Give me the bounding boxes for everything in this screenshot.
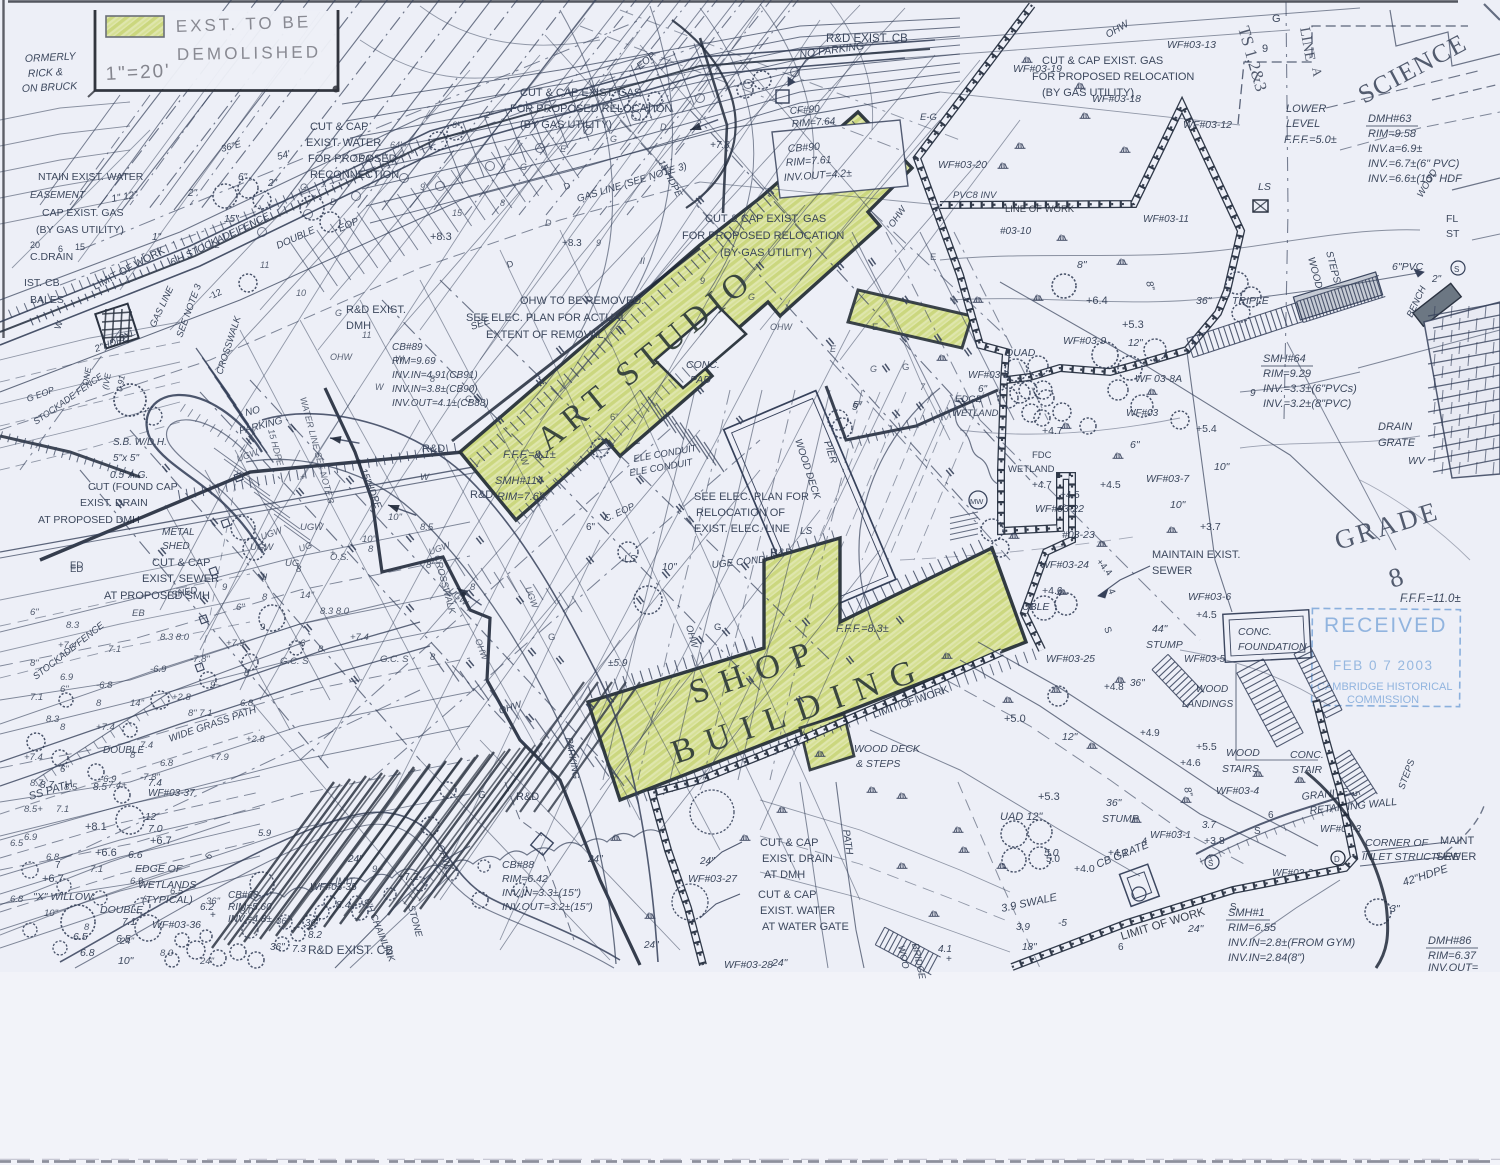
- svg-text:E: E: [830, 344, 837, 354]
- svg-text:INV.=3.2±(8"PVC): INV.=3.2±(8"PVC): [1263, 398, 1352, 410]
- svg-text:15: 15: [75, 242, 85, 252]
- svg-text:CORNER OF: CORNER OF: [1365, 837, 1429, 849]
- svg-text:WF#03-5: WF#03-5: [1184, 654, 1226, 665]
- svg-text:8: 8: [368, 544, 374, 555]
- svg-text:6": 6": [610, 412, 619, 423]
- svg-text:S: S: [1208, 859, 1213, 868]
- svg-text:24": 24": [1187, 923, 1205, 935]
- svg-text:LINE OF WORK: LINE OF WORK: [1005, 204, 1075, 215]
- svg-text:+5.5: +5.5: [1196, 741, 1217, 753]
- svg-text:CB#89: CB#89: [392, 342, 423, 353]
- svg-text:INV.=6.7±(6" PVC): INV.=6.7±(6" PVC): [1368, 158, 1460, 170]
- svg-text:7.4+: 7.4+: [108, 780, 127, 791]
- svg-text:15: 15: [452, 208, 463, 218]
- svg-text:11: 11: [362, 330, 371, 340]
- svg-text:RIM=6.55: RIM=6.55: [1228, 922, 1277, 934]
- svg-text:6": 6": [30, 607, 39, 618]
- svg-text:WF#03-25: WF#03-25: [1046, 653, 1095, 665]
- svg-text:UAD 12": UAD 12": [1000, 811, 1044, 823]
- svg-text:WETLAND: WETLAND: [1008, 464, 1055, 475]
- svg-text:6": 6": [1130, 439, 1141, 451]
- svg-text:SMH#1: SMH#1: [1228, 907, 1265, 919]
- svg-text:6: 6: [300, 638, 306, 649]
- svg-text:ST: ST: [1446, 228, 1460, 240]
- svg-text:8': 8': [426, 560, 434, 571]
- svg-text:8: 8: [296, 564, 302, 575]
- svg-text:+4.5: +4.5: [1100, 479, 1121, 491]
- svg-text:EXIST. SEWER: EXIST. SEWER: [142, 573, 219, 585]
- svg-text:WF#03-12: WF#03-12: [1183, 119, 1232, 131]
- svg-text:24": 24": [199, 956, 215, 967]
- svg-text:2": 2": [1431, 274, 1442, 285]
- svg-text:"X" WILLOW: "X" WILLOW: [33, 891, 94, 903]
- svg-text:10: 10: [296, 288, 306, 298]
- svg-text:AT WATER GATE: AT WATER GATE: [762, 921, 849, 933]
- svg-text:6": 6": [586, 522, 596, 533]
- svg-text:8": 8": [30, 658, 39, 669]
- svg-text:9: 9: [260, 622, 266, 633]
- svg-text:6": 6": [60, 684, 69, 695]
- svg-text:G: G: [335, 308, 342, 318]
- svg-text:+2.8: +2.8: [172, 692, 191, 703]
- svg-text:LOWER: LOWER: [1286, 103, 1326, 115]
- svg-text:9: 9: [596, 238, 601, 248]
- svg-text:9: 9: [420, 182, 425, 192]
- svg-text:9: 9: [700, 276, 705, 286]
- svg-text:FEB 0 7 2003: FEB 0 7 2003: [1333, 658, 1434, 673]
- svg-text:INV.IN=2.8±(FROM GYM): INV.IN=2.8±(FROM GYM): [1228, 937, 1355, 949]
- svg-text:+: +: [300, 472, 306, 483]
- svg-text:8: 8: [130, 750, 136, 761]
- svg-text:OHW: OHW: [330, 352, 354, 362]
- svg-text:36": 36": [206, 896, 221, 907]
- svg-text:6.8: 6.8: [46, 852, 60, 863]
- svg-text:WOOD: WOOD: [1226, 747, 1260, 759]
- svg-text:DEMOLISHED: DEMOLISHED: [177, 42, 322, 64]
- svg-text:UGW: UGW: [300, 522, 324, 533]
- svg-text:8.3: 8.3: [46, 714, 60, 725]
- svg-text:8" 7.1: 8" 7.1: [188, 708, 213, 719]
- svg-text:WF#03-2: WF#03-2: [968, 370, 1010, 381]
- svg-text:G: G: [465, 394, 472, 404]
- svg-text:10": 10": [44, 908, 59, 919]
- svg-text:WF#03-1: WF#03-1: [1150, 830, 1191, 841]
- svg-text:WF#03-9: WF#03-9: [1063, 335, 1106, 347]
- svg-text:+7.4: +7.4: [58, 640, 77, 651]
- svg-text:DOUBLE: DOUBLE: [100, 904, 144, 916]
- svg-text:FOUNDATION: FOUNDATION: [1238, 641, 1307, 653]
- svg-text:QUAD: QUAD: [1005, 347, 1036, 359]
- svg-text:DRAIN: DRAIN: [1378, 421, 1412, 433]
- svg-text:MW: MW: [970, 497, 984, 506]
- svg-text:7.1: 7.1: [56, 804, 69, 815]
- svg-text:8: 8: [60, 722, 66, 733]
- svg-text:+: +: [210, 910, 216, 921]
- svg-text:12": 12": [1062, 731, 1079, 743]
- svg-text:INV.a=6.9±: INV.a=6.9±: [1368, 143, 1422, 155]
- svg-text:SEE ELEC. PLAN FOR: SEE ELEC. PLAN FOR: [694, 491, 809, 503]
- svg-text:6": 6": [238, 172, 248, 183]
- svg-text:8.3: 8.3: [66, 620, 80, 631]
- svg-text:+7.9: +7.9: [210, 752, 229, 763]
- svg-text:6: 6: [1118, 942, 1124, 953]
- svg-text:D: D: [330, 197, 337, 207]
- svg-text:10": 10": [118, 955, 135, 967]
- svg-text:8.3 8.0: 8.3 8.0: [320, 606, 350, 617]
- svg-text:MAINT: MAINT: [1440, 835, 1475, 847]
- svg-text:+2.8: +2.8: [246, 734, 265, 745]
- svg-text:5": 5": [853, 400, 863, 411]
- svg-text:DOUBLE: DOUBLE: [103, 745, 144, 756]
- svg-text:FDC: FDC: [1032, 450, 1052, 461]
- svg-text:SMH#114: SMH#114: [495, 475, 543, 487]
- svg-text:UGW: UGW: [250, 542, 274, 553]
- svg-text:6.9: 6.9: [24, 832, 38, 843]
- svg-text:-6.8: -6.8: [96, 680, 113, 691]
- svg-text:6.8: 6.8: [240, 698, 254, 709]
- svg-text:+4.6: +4.6: [1180, 757, 1201, 769]
- svg-text:CUT & CAP EXIST. GAS: CUT & CAP EXIST. GAS: [705, 213, 826, 225]
- svg-text:FOR PROPOSED RELOCATION: FOR PROPOSED RELOCATION: [682, 230, 844, 242]
- svg-text:WOOD DECK: WOOD DECK: [854, 743, 921, 755]
- svg-text:+5.3: +5.3: [1038, 791, 1060, 803]
- svg-text:8: 8: [96, 698, 102, 709]
- svg-text:R&D EXIST.: R&D EXIST.: [346, 304, 406, 316]
- svg-text:#03-23: #03-23: [1062, 529, 1095, 541]
- svg-text:D: D: [545, 218, 552, 228]
- svg-text:INV.=3.3±(6"PVCs): INV.=3.3±(6"PVCs): [1263, 383, 1357, 395]
- svg-text:8.0: 8.0: [160, 948, 174, 959]
- svg-text:7.54': 7.54': [352, 154, 372, 164]
- svg-text:4: 4: [1142, 836, 1147, 847]
- svg-text:36": 36": [1106, 797, 1123, 809]
- svg-text:8: 8: [84, 922, 90, 933]
- svg-text:DMH#63: DMH#63: [1368, 113, 1412, 125]
- svg-text:G: G: [610, 134, 617, 144]
- svg-text:INV.OUT=3.2±(15"): INV.OUT=3.2±(15"): [502, 901, 593, 913]
- svg-text:WF#03-7: WF#03-7: [1146, 473, 1190, 485]
- svg-text:SMH#64: SMH#64: [1263, 353, 1306, 365]
- svg-text:7.3: 7.3: [292, 944, 306, 955]
- svg-text:R&D: R&D: [422, 443, 445, 455]
- svg-text:F.F.F.=5.0±: F.F.F.=5.0±: [1284, 134, 1337, 146]
- svg-text:9: 9: [1250, 388, 1256, 399]
- svg-text:LANDINGS: LANDINGS: [1182, 699, 1233, 710]
- svg-text:G: G: [870, 364, 877, 374]
- svg-text:8: 8: [470, 582, 476, 593]
- svg-text:S.B. W/D.H.: S.B. W/D.H.: [113, 437, 167, 448]
- svg-text:5"x 5": 5"x 5": [113, 453, 139, 464]
- svg-text:-7.8": -7.8": [140, 772, 160, 783]
- svg-text:12: 12: [210, 240, 220, 250]
- svg-text:8.5+: 8.5+: [24, 804, 43, 815]
- svg-text:CONC.: CONC.: [1238, 626, 1272, 638]
- svg-text:8: 8: [244, 668, 250, 679]
- svg-text:9~: 9~: [210, 680, 221, 691]
- svg-text:RICK &: RICK &: [28, 66, 64, 80]
- svg-text:G: G: [548, 632, 555, 643]
- svg-text:G: G: [714, 622, 721, 633]
- svg-text:NTAIN EXIST. WATER: NTAIN EXIST. WATER: [38, 171, 144, 183]
- svg-text:CUT (FOUND CAP: CUT (FOUND CAP: [88, 481, 178, 493]
- svg-text:6.8: 6.8: [160, 758, 174, 769]
- svg-text:6.5: 6.5: [10, 838, 24, 849]
- svg-text:36": 36": [1196, 295, 1213, 307]
- svg-text:UBLE: UBLE: [1022, 601, 1050, 613]
- svg-text:+: +: [946, 954, 952, 965]
- svg-text:G.C. S: G.C. S: [380, 654, 409, 665]
- svg-text:ED: ED: [70, 564, 83, 575]
- svg-text:3.7: 3.7: [1202, 820, 1216, 831]
- svg-text:15": 15": [224, 214, 239, 225]
- svg-text:8: 8: [262, 592, 268, 603]
- svg-text:+4.5: +4.5: [1196, 609, 1217, 621]
- svg-text:(BY GAS UTILITY): (BY GAS UTILITY): [36, 224, 124, 236]
- svg-text:INV.OUT=4.1±(CB88): INV.OUT=4.1±(CB88): [392, 398, 489, 409]
- svg-text:10": 10": [388, 512, 403, 523]
- svg-text:14": 14": [300, 590, 315, 601]
- svg-text:CONC.: CONC.: [686, 359, 720, 371]
- svg-text:8: 8: [430, 374, 435, 384]
- svg-text:2": 2": [484, 110, 494, 120]
- svg-text:INV.OUT=: INV.OUT=: [1428, 962, 1479, 974]
- svg-text:8.5: 8.5: [420, 522, 434, 533]
- svg-text:6.8: 6.8: [80, 947, 95, 959]
- svg-text:WF#03-11: WF#03-11: [1143, 214, 1189, 225]
- svg-text:W: W: [420, 472, 430, 483]
- svg-text:14": 14": [130, 698, 145, 709]
- svg-text:CUT & CAP: CUT & CAP: [758, 889, 816, 901]
- svg-text:EDGE: EDGE: [955, 394, 983, 405]
- svg-text:BALES: BALES: [30, 294, 64, 306]
- svg-text:7.1: 7.1: [90, 864, 103, 875]
- svg-text:CUT & CAP: CUT & CAP: [310, 121, 368, 133]
- svg-text:G.C. S: G.C. S: [280, 656, 309, 667]
- svg-text:+5.4: +5.4: [1196, 423, 1217, 435]
- svg-text:24": 24": [699, 856, 715, 867]
- svg-text:1"=20': 1"=20': [105, 61, 171, 85]
- svg-text:G: G: [300, 182, 307, 192]
- svg-text:-7.8": -7.8": [190, 654, 210, 665]
- svg-text:RECEIVED: RECEIVED: [1324, 614, 1447, 637]
- svg-text:RELOCATION OF: RELOCATION OF: [696, 507, 785, 519]
- svg-text:G: G: [520, 162, 527, 172]
- svg-text:7.4: 7.4: [140, 740, 153, 751]
- svg-text:EB: EB: [132, 608, 145, 619]
- svg-text:STAIRS: STAIRS: [1222, 763, 1259, 775]
- svg-text:WF#03-19: WF#03-19: [1013, 63, 1062, 75]
- svg-text:#03-10: #03-10: [1000, 226, 1032, 237]
- svg-text:6.9: 6.9: [60, 672, 74, 683]
- svg-text:12": 12": [1128, 338, 1143, 349]
- svg-text:INV.IN=2.84(8"): INV.IN=2.84(8"): [1228, 952, 1305, 964]
- svg-text:+4.9: +4.9: [1140, 728, 1160, 739]
- svg-text:LEVEL: LEVEL: [1286, 118, 1320, 130]
- svg-text:+7.4: +7.4: [24, 752, 43, 763]
- svg-text:EXIST. WATER: EXIST. WATER: [760, 905, 835, 917]
- svg-text:+4.8: +4.8: [1104, 682, 1124, 693]
- svg-text:S: S: [1454, 265, 1459, 274]
- svg-text:10": 10": [662, 562, 677, 573]
- svg-text:E: E: [930, 252, 936, 263]
- svg-text:+8.3: +8.3: [430, 231, 452, 243]
- svg-text:WF#03-6: WF#03-6: [1188, 591, 1231, 603]
- svg-text:E: E: [560, 144, 567, 154]
- svg-text:36": 36": [1130, 678, 1145, 689]
- svg-text:FL: FL: [1446, 213, 1458, 225]
- svg-text:6": 6": [236, 602, 245, 613]
- svg-text:6.8: 6.8: [10, 894, 24, 905]
- svg-text:6": 6": [978, 384, 988, 395]
- svg-text:SEWER: SEWER: [1436, 851, 1476, 863]
- svg-text:EXIST. DRAIN: EXIST. DRAIN: [80, 497, 148, 509]
- svg-text:RIM=9.58: RIM=9.58: [1368, 128, 1417, 140]
- svg-text:LS: LS: [1258, 181, 1271, 193]
- svg-text:7.1: 7.1: [122, 917, 136, 928]
- svg-text:INV.=6.6±(15" HDF: INV.=6.6±(15" HDF: [1368, 173, 1463, 185]
- svg-text:CAMBRIDGE HISTORICAL: CAMBRIDGE HISTORICAL: [1317, 681, 1453, 693]
- svg-text:WF#03-27: WF#03-27: [688, 873, 738, 885]
- svg-text:WF#03-4: WF#03-4: [1216, 785, 1259, 797]
- svg-text:7.1: 7.1: [30, 692, 43, 703]
- svg-text:WF#03-28: WF#03-28: [724, 959, 773, 971]
- svg-text:5.9: 5.9: [258, 828, 272, 839]
- svg-text:+8.1: +8.1: [85, 821, 107, 833]
- svg-text:+5.0: +5.0: [1004, 713, 1026, 725]
- svg-text:8.3 8.0: 8.3 8.0: [160, 632, 190, 643]
- svg-text:INV.IN=3.3±(15"): INV.IN=3.3±(15"): [502, 887, 581, 899]
- svg-text:CONC.: CONC.: [1290, 749, 1324, 761]
- svg-text:+4.7: +4.7: [1042, 425, 1063, 437]
- svg-text:44": 44": [1152, 623, 1169, 635]
- svg-text:10": 10": [1214, 461, 1231, 473]
- svg-text:PAD: PAD: [690, 374, 711, 386]
- svg-text:II: II: [640, 256, 646, 266]
- svg-text:OHW: OHW: [770, 322, 794, 332]
- svg-text:+6.7: +6.7: [42, 873, 64, 885]
- svg-text:6.5: 6.5: [170, 886, 184, 897]
- svg-text:EXIST. DRAIN: EXIST. DRAIN: [762, 853, 833, 865]
- svg-text:+7.4: +7.4: [96, 722, 115, 733]
- svg-text:DMH#86: DMH#86: [1428, 935, 1472, 947]
- svg-text:24": 24": [771, 957, 789, 969]
- svg-text:WF#03-13: WF#03-13: [1167, 39, 1216, 51]
- svg-text:O.S.: O.S.: [330, 552, 349, 563]
- svg-text:6": 6": [60, 764, 69, 775]
- svg-text:D: D: [1334, 855, 1340, 864]
- svg-text:R&D: R&D: [470, 489, 493, 501]
- svg-text:WV: WV: [1408, 455, 1426, 467]
- svg-text:STUMP: STUMP: [1146, 639, 1183, 651]
- svg-text:6": 6": [452, 120, 461, 130]
- svg-text:8.2: 8.2: [308, 930, 322, 941]
- svg-text:SEWER: SEWER: [1152, 565, 1192, 577]
- svg-text:MAINTAIN EXIST.: MAINTAIN EXIST.: [1152, 549, 1240, 561]
- svg-text:WF#03-24: WF#03-24: [1040, 559, 1089, 571]
- svg-text:G: G: [902, 362, 909, 373]
- svg-text:E: E: [872, 322, 878, 333]
- svg-text:8: 8: [500, 198, 505, 208]
- svg-text:CUT & CAP EXIST. GAS: CUT & CAP EXIST. GAS: [520, 87, 641, 99]
- svg-text:11: 11: [260, 260, 269, 270]
- svg-text:+7.9: +7.9: [226, 638, 245, 649]
- svg-text:64': 64': [390, 140, 402, 150]
- svg-text:PVC8 INV: PVC8 INV: [953, 190, 998, 201]
- svg-text:8": 8": [1077, 259, 1088, 271]
- svg-text:WF#03-22: WF#03-22: [1035, 503, 1084, 515]
- svg-text:8.7: 8.7: [30, 778, 44, 789]
- svg-text:II: II: [262, 572, 268, 583]
- svg-text:RIM=7.68: RIM=7.68: [497, 491, 546, 503]
- svg-text:-6.9: -6.9: [150, 664, 167, 675]
- svg-text:+4.0: +4.0: [1074, 863, 1095, 875]
- svg-text:8: 8: [318, 644, 324, 655]
- svg-text:G: G: [748, 292, 755, 302]
- svg-text:RIM=6.37: RIM=6.37: [1428, 950, 1477, 962]
- svg-text:+4.5: +4.5: [1060, 490, 1080, 501]
- svg-text:8.5: 8.5: [64, 782, 78, 793]
- svg-text:EXTENT OF REMOVAL: EXTENT OF REMOVAL: [486, 329, 604, 341]
- svg-text:24": 24": [119, 936, 135, 947]
- svg-text:& STEPS: & STEPS: [856, 758, 900, 770]
- svg-text:6.9: 6.9: [130, 876, 144, 887]
- svg-text:6: 6: [58, 244, 63, 254]
- svg-text:E-G: E-G: [920, 112, 937, 123]
- svg-text:2": 2": [267, 178, 278, 189]
- svg-text:9: 9: [222, 582, 228, 593]
- svg-text:D: D: [660, 122, 667, 132]
- svg-text:C.DRAIN: C.DRAIN: [30, 251, 73, 263]
- svg-text:5.0: 5.0: [1046, 854, 1060, 865]
- svg-text:18": 18": [1022, 942, 1037, 953]
- svg-text:+5.3: +5.3: [1122, 319, 1144, 331]
- svg-text:9: 9: [1262, 43, 1268, 55]
- svg-text:+7.4: +7.4: [350, 632, 369, 643]
- svg-text:WF#03-18: WF#03-18: [1092, 93, 1141, 105]
- svg-text:+4.1: +4.1: [1108, 848, 1128, 859]
- svg-text:COMMISSION: COMMISSION: [1347, 694, 1419, 706]
- svg-text:IST. CB: IST. CB: [24, 277, 60, 289]
- svg-text:F.F.F.=8.3±: F.F.F.=8.3±: [836, 623, 889, 635]
- svg-text:-5: -5: [1058, 918, 1067, 929]
- svg-text:CB#88: CB#88: [502, 859, 534, 871]
- svg-text:10": 10": [1170, 499, 1187, 511]
- svg-text:F.F.F.=11.0±: F.F.F.=11.0±: [1400, 593, 1461, 605]
